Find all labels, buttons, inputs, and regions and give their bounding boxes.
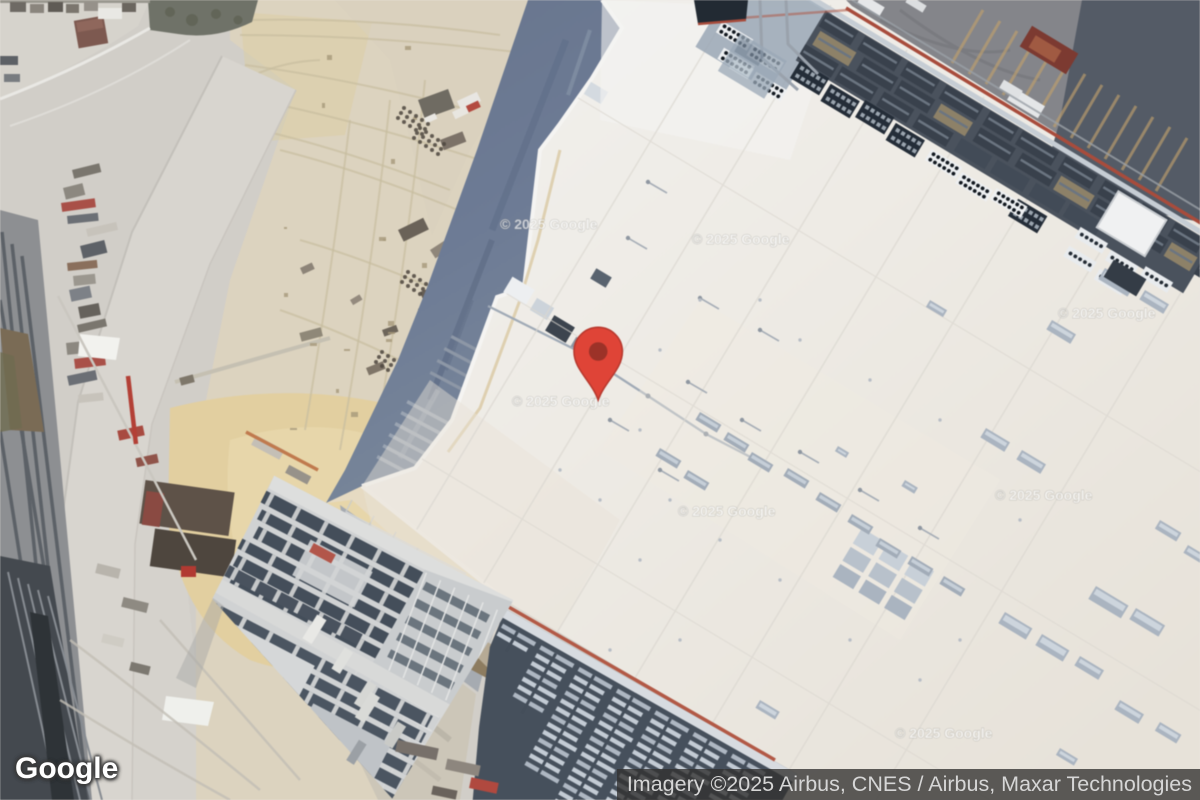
svg-text:© 2025 Google: © 2025 Google <box>678 503 776 519</box>
svg-text:© 2025 Google: © 2025 Google <box>692 231 790 247</box>
svg-text:© 2025 Google: © 2025 Google <box>995 487 1093 503</box>
svg-text:© 2025 Google: © 2025 Google <box>500 216 598 232</box>
svg-text:© 2025 Google: © 2025 Google <box>895 725 993 741</box>
svg-text:© 2025 Google: © 2025 Google <box>512 393 610 409</box>
svg-text:© 2025 Google: © 2025 Google <box>1058 305 1156 321</box>
